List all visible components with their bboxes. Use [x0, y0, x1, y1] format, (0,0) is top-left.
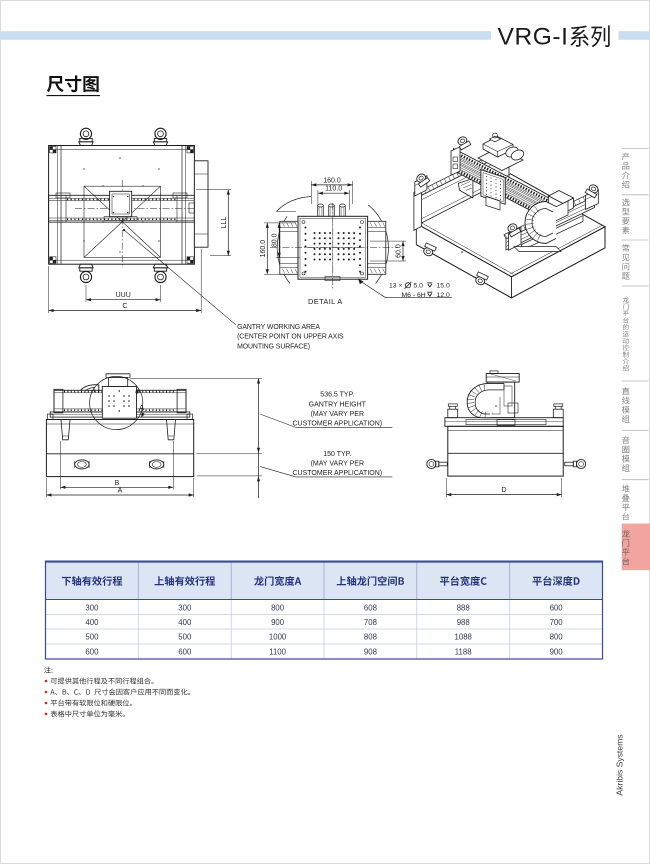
svg-text:GANTRY HEIGHT: GANTRY HEIGHT — [309, 401, 367, 408]
svg-text:150 TYP.: 150 TYP. — [323, 451, 351, 458]
svg-text:988: 988 — [457, 618, 470, 627]
svg-text:160.0: 160.0 — [323, 177, 341, 184]
svg-text:1000: 1000 — [269, 633, 287, 642]
svg-text:12.0: 12.0 — [437, 292, 450, 299]
svg-text:(MAY VARY PER: (MAY VARY PER — [311, 460, 364, 467]
svg-text:C: C — [122, 303, 127, 310]
svg-text:160.0: 160.0 — [260, 240, 267, 258]
svg-text:1188: 1188 — [455, 648, 472, 657]
svg-text:15.0: 15.0 — [437, 283, 450, 290]
svg-text:600: 600 — [85, 648, 99, 657]
svg-text:400: 400 — [178, 618, 192, 627]
svg-text:1100: 1100 — [269, 648, 286, 657]
svg-text:GANTRY WORKING AREA: GANTRY WORKING AREA — [237, 324, 320, 331]
svg-text:CUSTOMER APPLICATION): CUSTOMER APPLICATION) — [293, 470, 383, 477]
svg-text:888: 888 — [457, 603, 470, 612]
svg-text:Akribis Systems: Akribis Systems — [615, 734, 625, 795]
svg-text:900: 900 — [271, 618, 285, 627]
svg-text:600: 600 — [550, 603, 564, 612]
svg-text:A: A — [139, 403, 144, 412]
svg-text:900: 900 — [550, 648, 564, 657]
svg-text:800: 800 — [550, 633, 564, 642]
svg-text:708: 708 — [364, 618, 377, 627]
svg-text:B: B — [115, 480, 120, 487]
svg-text:5.0: 5.0 — [414, 283, 424, 290]
svg-text:(CENTER POINT ON UPPER AXIS: (CENTER POINT ON UPPER AXIS — [237, 334, 344, 341]
svg-text:536.5 TYP.: 536.5 TYP. — [320, 392, 354, 399]
svg-text:UUU: UUU — [116, 292, 131, 299]
svg-text:VRG-I: VRG-I — [498, 24, 569, 51]
svg-text:600: 600 — [178, 648, 192, 657]
svg-text:M6 - 6H: M6 - 6H — [402, 292, 426, 299]
svg-text:CUSTOMER APPLICATION): CUSTOMER APPLICATION) — [293, 421, 383, 428]
svg-text:300: 300 — [178, 603, 192, 612]
svg-text:13 ×: 13 × — [389, 283, 402, 290]
svg-text:800: 800 — [271, 603, 285, 612]
svg-text:700: 700 — [550, 618, 564, 627]
svg-text:300: 300 — [85, 603, 99, 612]
svg-text:608: 608 — [364, 603, 377, 612]
svg-text:MOUNTING SURFACE): MOUNTING SURFACE) — [237, 343, 310, 350]
svg-text:808: 808 — [364, 633, 377, 642]
svg-text:1088: 1088 — [455, 633, 472, 642]
svg-text:(MAY VARY PER: (MAY VARY PER — [311, 411, 364, 418]
svg-text:400: 400 — [85, 618, 99, 627]
svg-text:60.0: 60.0 — [396, 244, 403, 258]
svg-text:DETAIL A: DETAIL A — [308, 297, 343, 306]
svg-text:110.0: 110.0 — [325, 186, 342, 193]
svg-text:80.0: 80.0 — [272, 233, 279, 247]
svg-text:908: 908 — [364, 648, 377, 657]
svg-text:LLL: LLL — [221, 217, 228, 229]
svg-text:A: A — [118, 488, 123, 495]
svg-text:500: 500 — [178, 633, 192, 642]
svg-text:500: 500 — [85, 633, 99, 642]
svg-text:D: D — [501, 487, 506, 494]
